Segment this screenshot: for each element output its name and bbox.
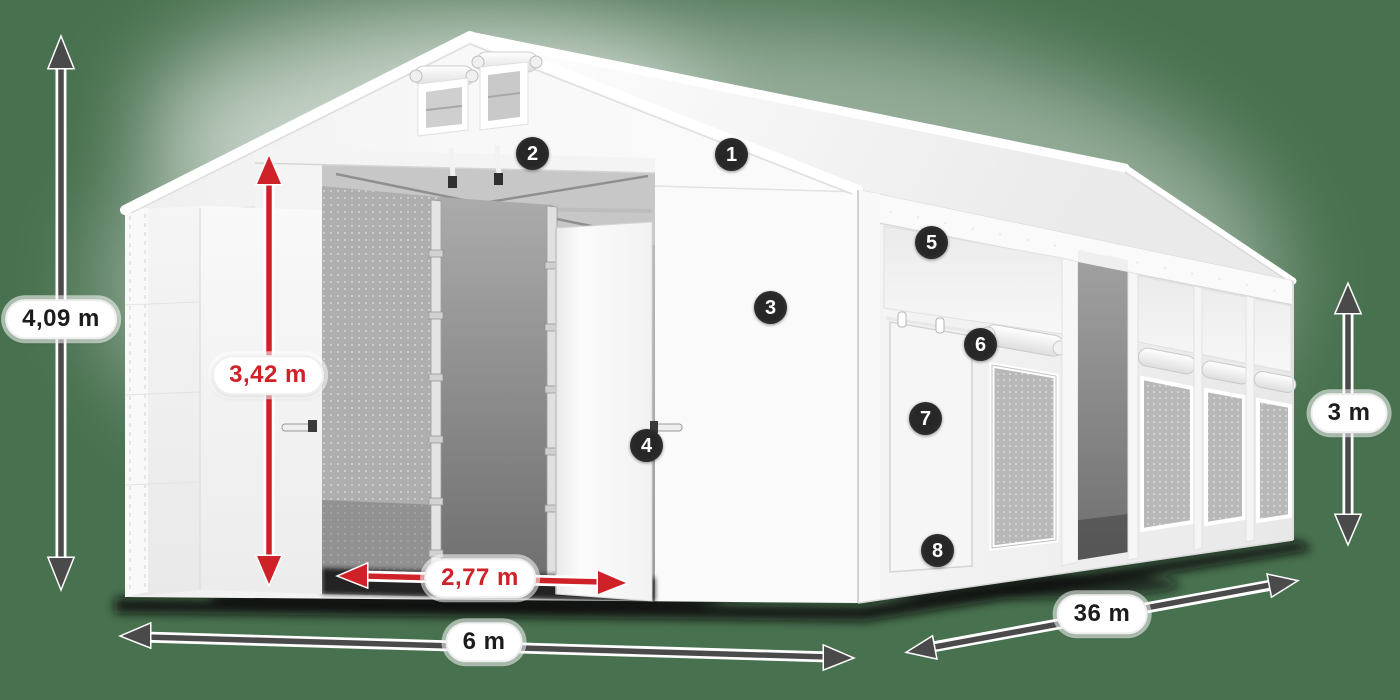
width-label: 6 m <box>446 622 523 662</box>
marker-7-number: 7 <box>920 409 931 429</box>
marker-4-number: 4 <box>641 436 652 456</box>
marker-8-number: 8 <box>932 541 943 561</box>
marker-8[interactable]: 8 <box>921 534 954 567</box>
tent-illustration <box>0 0 1400 700</box>
marker-5-number: 5 <box>926 233 937 253</box>
side-door <box>886 312 976 572</box>
interior-pole <box>429 200 443 586</box>
side-doorway-opening <box>1078 250 1128 560</box>
marker-3[interactable]: 3 <box>754 291 787 324</box>
side-corner-pillar <box>858 190 880 603</box>
marker-4[interactable]: 4 <box>630 429 663 462</box>
length-label: 36 m <box>1057 594 1148 634</box>
tent-diagram-stage: 4,09 m 3,42 m 2,77 m 6 m 36 m 3 m 1 2 3 … <box>0 0 1400 700</box>
interior-passage <box>438 197 553 578</box>
front-left-door-panel <box>200 206 322 594</box>
entrance-width-label: 2,77 m <box>424 558 536 598</box>
marker-1-number: 1 <box>726 145 737 165</box>
side-height-label: 3 m <box>1311 393 1388 433</box>
interior-height-label: 3,42 m <box>212 355 324 395</box>
marker-7[interactable]: 7 <box>909 402 942 435</box>
marker-5[interactable]: 5 <box>915 226 948 259</box>
marker-2-number: 2 <box>527 144 538 164</box>
marker-2[interactable]: 2 <box>516 137 549 170</box>
total-height-label: 4,09 m <box>5 299 117 339</box>
marker-6[interactable]: 6 <box>964 328 997 361</box>
front-left-wall <box>125 206 322 597</box>
marker-6-number: 6 <box>975 335 986 355</box>
marker-3-number: 3 <box>765 298 776 318</box>
marker-1[interactable]: 1 <box>715 138 748 171</box>
